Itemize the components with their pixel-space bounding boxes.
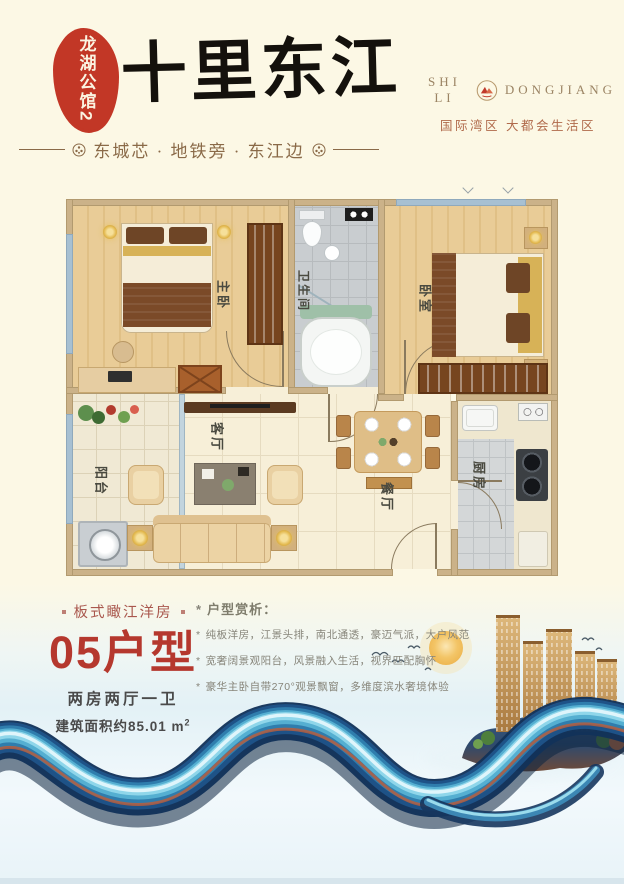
brand-block: SHI LI DONGJIANG 国际湾区 大都会生活区 [420,74,616,134]
entrance-door-leaf [435,523,437,569]
bullet-marker: * [196,681,201,693]
dining-chair [425,415,440,437]
dining-chair [336,415,351,437]
room-label-living-room: 客厅 [209,422,228,452]
tick-ornament [181,610,185,614]
wall [378,199,385,394]
blanket [432,253,456,357]
sofa [153,523,271,563]
wardrobe [247,223,283,345]
analysis-point-text: 豪华主卧自带270°观景飘窗，多维度滨水奢境体验 [206,681,450,693]
dining-table [354,411,422,473]
bathroom-window [345,208,373,221]
analysis-point: *纯板洋房，江景头排，南北通透，豪迈气派，大户风范 [196,627,486,642]
blanket [123,283,211,327]
door-leaf [328,394,330,442]
series-label: 板式瞰江洋房 [28,601,218,622]
tick-ornament [62,610,66,614]
pillow [506,313,530,343]
bedside-lamp [529,231,542,244]
shower-drain [324,245,340,261]
flower [106,405,116,415]
door-gap [451,481,458,529]
analysis-block: *户型赏析： *纯板洋房，江景头排，南北通透，豪迈气派，大户风范 *宽奢阔景观阳… [196,599,486,705]
pillow [126,227,164,244]
unit-area: 建筑面积约85.01 m2 [28,715,218,735]
area-superscript: 2 [185,717,191,727]
brand-seal: 龙湖公馆2 [55,28,117,130]
bathtub [300,317,372,387]
analysis-point: *豪华主卧自带270°观景飘窗，多维度滨水奢境体验 [196,679,486,694]
analysis-point: *宽奢阔景观阳台，风景融入生活，视界匹配胸怀 [196,653,486,668]
area-text: 建筑面积约85.01 m [55,719,184,734]
door-gap [328,387,378,394]
analysis-title: *户型赏析： [196,599,486,618]
tagline-line [333,149,379,150]
table-decor [202,469,214,479]
plant [118,411,130,423]
bullet-marker: * [196,629,201,641]
bed-runner [123,246,211,256]
tagline-text: 东城芯 · 地铁旁 · 东江边 [93,137,304,162]
room-label-master-bedroom: 主卧 [215,280,234,310]
window [66,234,73,354]
wall [456,394,558,401]
plant [92,411,105,424]
armchair [128,465,164,505]
bullet-marker: * [196,655,201,667]
gas-hob-box [518,403,548,421]
dining-chair [425,447,440,469]
toilet-tank [299,210,325,220]
room-label-dining-room: 餐厅 [379,482,398,512]
room-label-balcony: 阳台 [93,466,112,496]
bedside-lamp [103,225,117,239]
floral-stamp-icon [72,143,86,157]
desk-chair [112,341,134,363]
stove [516,449,548,501]
wall [66,569,393,576]
pillow [169,227,207,244]
tagline: 东城芯 · 地铁旁 · 东江边 [0,137,398,162]
wall [451,529,458,576]
bottom-edge [0,878,624,884]
wall [288,199,295,394]
pillow [506,263,530,293]
wall [288,387,328,394]
cabinet [178,365,222,393]
bay-window-mark-icon [502,182,513,193]
door-leaf [404,340,406,394]
wall [451,401,458,481]
poster: { "header": { "seal": "龙湖公馆2", "title": … [0,0,624,884]
brand-left-text: SHI LI [420,74,469,106]
analysis-point-text: 宽奢阔景观阳台，风景融入生活，视界匹配胸怀 [206,655,437,667]
unit-layout: 两房两厅一卫 [28,687,218,709]
dining-chair [336,447,351,469]
room-label-bedroom: 卧室 [417,284,436,314]
kitchen-appliance [518,531,548,567]
tree [473,739,483,749]
series-text: 板式瞰江洋房 [74,601,173,622]
armchair [267,465,303,505]
analysis-title-text: 户型赏析： [207,602,277,617]
mountain-logo-icon [476,77,498,104]
unit-name: 05户型 [28,627,218,679]
room-label-bathroom: 卫生间 [296,270,313,312]
bay-window-mark-icon [462,182,473,193]
room-label-kitchen: 厨房 [471,461,490,491]
seal-text: 龙湖公馆2 [78,35,95,122]
page-title: 十里东江 [115,20,408,128]
analysis-point-text: 纯板洋房，江景头排，南北通透，豪迈气派，大户风范 [206,629,470,641]
window [396,199,526,206]
table-plant [222,479,234,491]
floor-plan: 主卧 卫生间 卧室 阳台 客厅 餐厅 厨房 [66,199,558,576]
door-gap [226,387,288,394]
tagline-line [19,149,65,150]
floral-stamp-icon [312,143,326,157]
washing-machine [78,521,128,567]
bedside-lamp [217,225,231,239]
unit-info-block: 板式瞰江洋房 05户型 两房两厅一卫 建筑面积约85.01 m2 [28,601,218,735]
tv [210,404,270,408]
wall [378,394,404,401]
kitchen-sink [462,405,498,431]
floor-lamp [276,530,292,546]
floor-lamp [132,530,148,546]
table-decor [238,467,249,476]
wall [551,199,558,576]
tree [481,731,495,745]
monitor [108,371,132,382]
bullet-marker: * [196,602,202,617]
flower [130,405,139,414]
wardrobe [418,363,548,394]
brand-right-text: DONGJIANG [505,82,616,98]
brand-subtitle: 国际湾区 大都会生活区 [420,115,616,134]
window [66,414,73,524]
